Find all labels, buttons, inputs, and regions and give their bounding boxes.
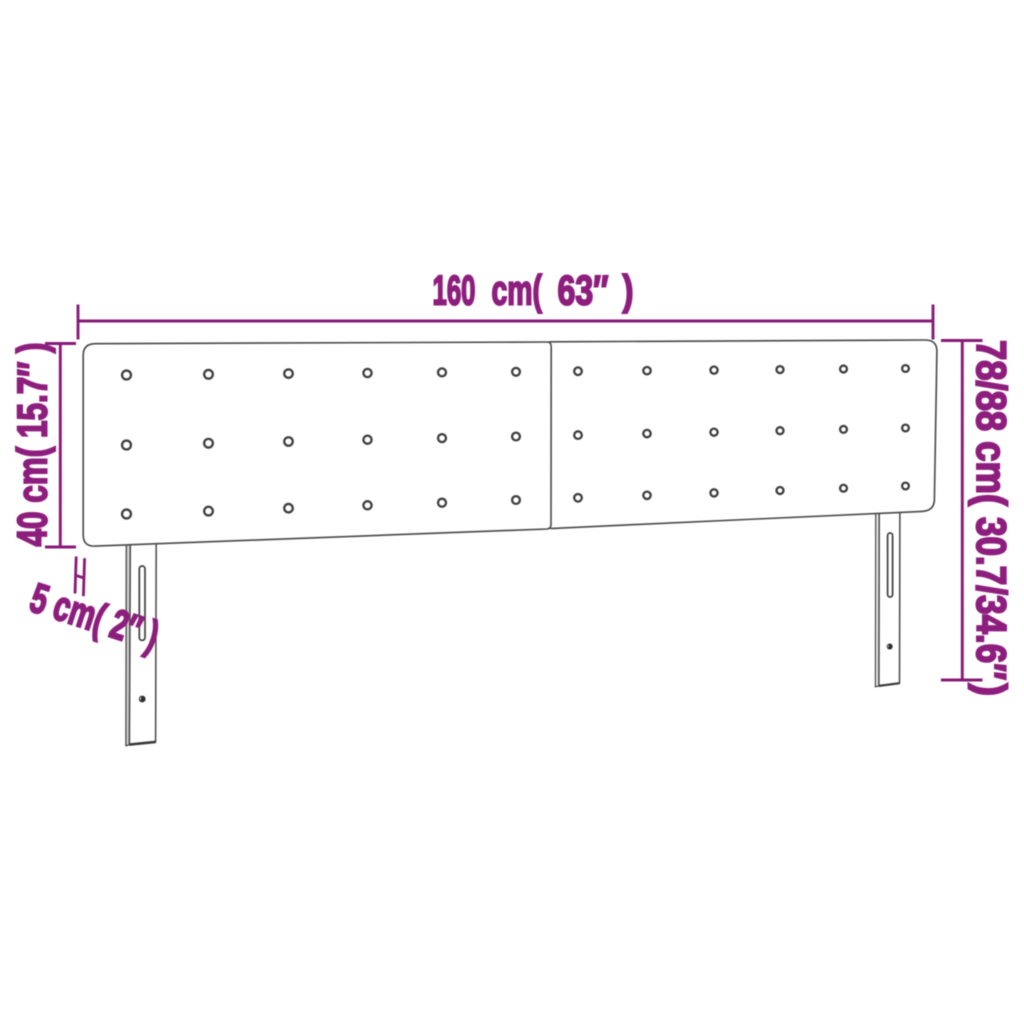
svg-text:30.7/34.6″: 30.7/34.6″: [968, 517, 1015, 680]
svg-text:40 cm( 15.7″ ): 40 cm( 15.7″ ): [9, 343, 56, 547]
svg-text:63″: 63″: [558, 267, 609, 314]
svg-text:78/88 cm(: 78/88 cm(: [968, 340, 1015, 506]
svg-text:): ): [968, 684, 1015, 697]
svg-text:cm(: cm(: [492, 267, 543, 314]
svg-text:): ): [623, 267, 634, 314]
svg-text:160: 160: [433, 267, 476, 314]
